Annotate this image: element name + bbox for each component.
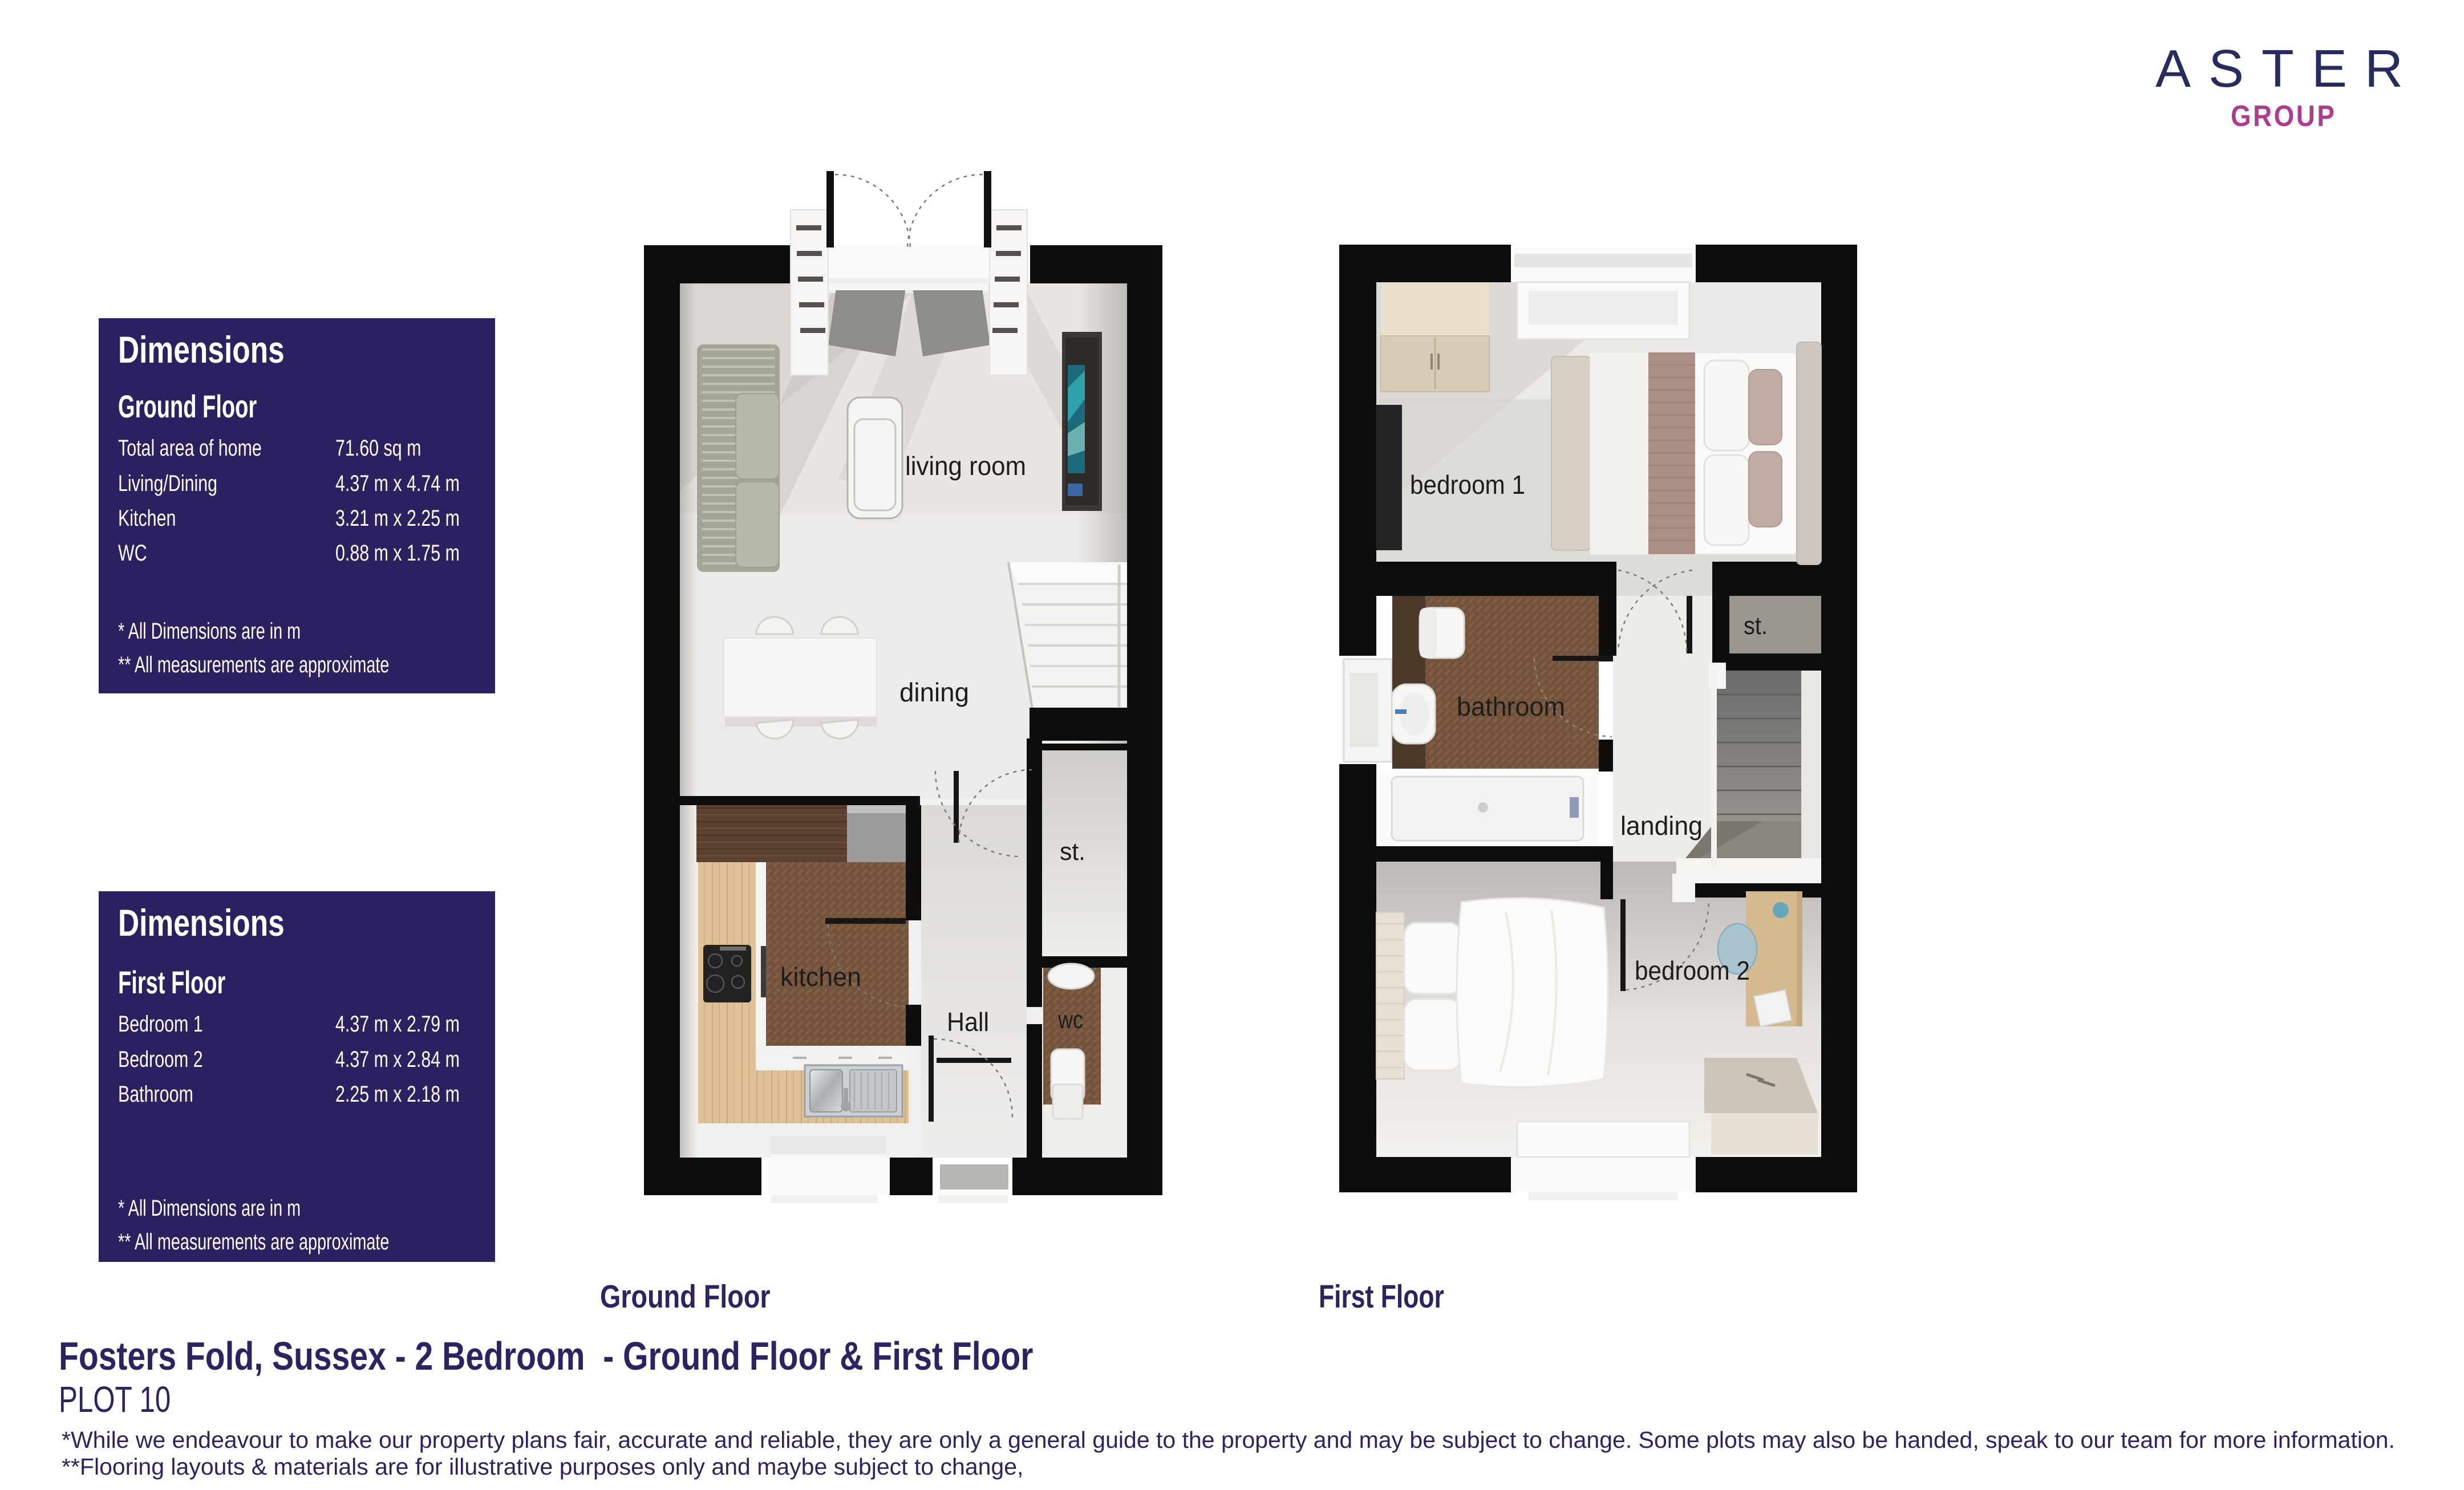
svg-text:Hall: Hall bbox=[947, 1007, 989, 1037]
svg-text:st.: st. bbox=[1060, 838, 1085, 866]
svg-text:kitchen: kitchen bbox=[780, 962, 861, 992]
svg-text:living room: living room bbox=[905, 451, 1026, 481]
svg-text:bedroom 2: bedroom 2 bbox=[1635, 956, 1750, 985]
svg-text:st.: st. bbox=[1744, 612, 1768, 640]
svg-text:bathroom: bathroom bbox=[1457, 692, 1565, 721]
svg-text:bedroom 1: bedroom 1 bbox=[1410, 470, 1525, 500]
svg-text:landing: landing bbox=[1620, 811, 1703, 841]
svg-text:dining: dining bbox=[899, 677, 969, 707]
svg-text:wc: wc bbox=[1057, 1006, 1083, 1034]
